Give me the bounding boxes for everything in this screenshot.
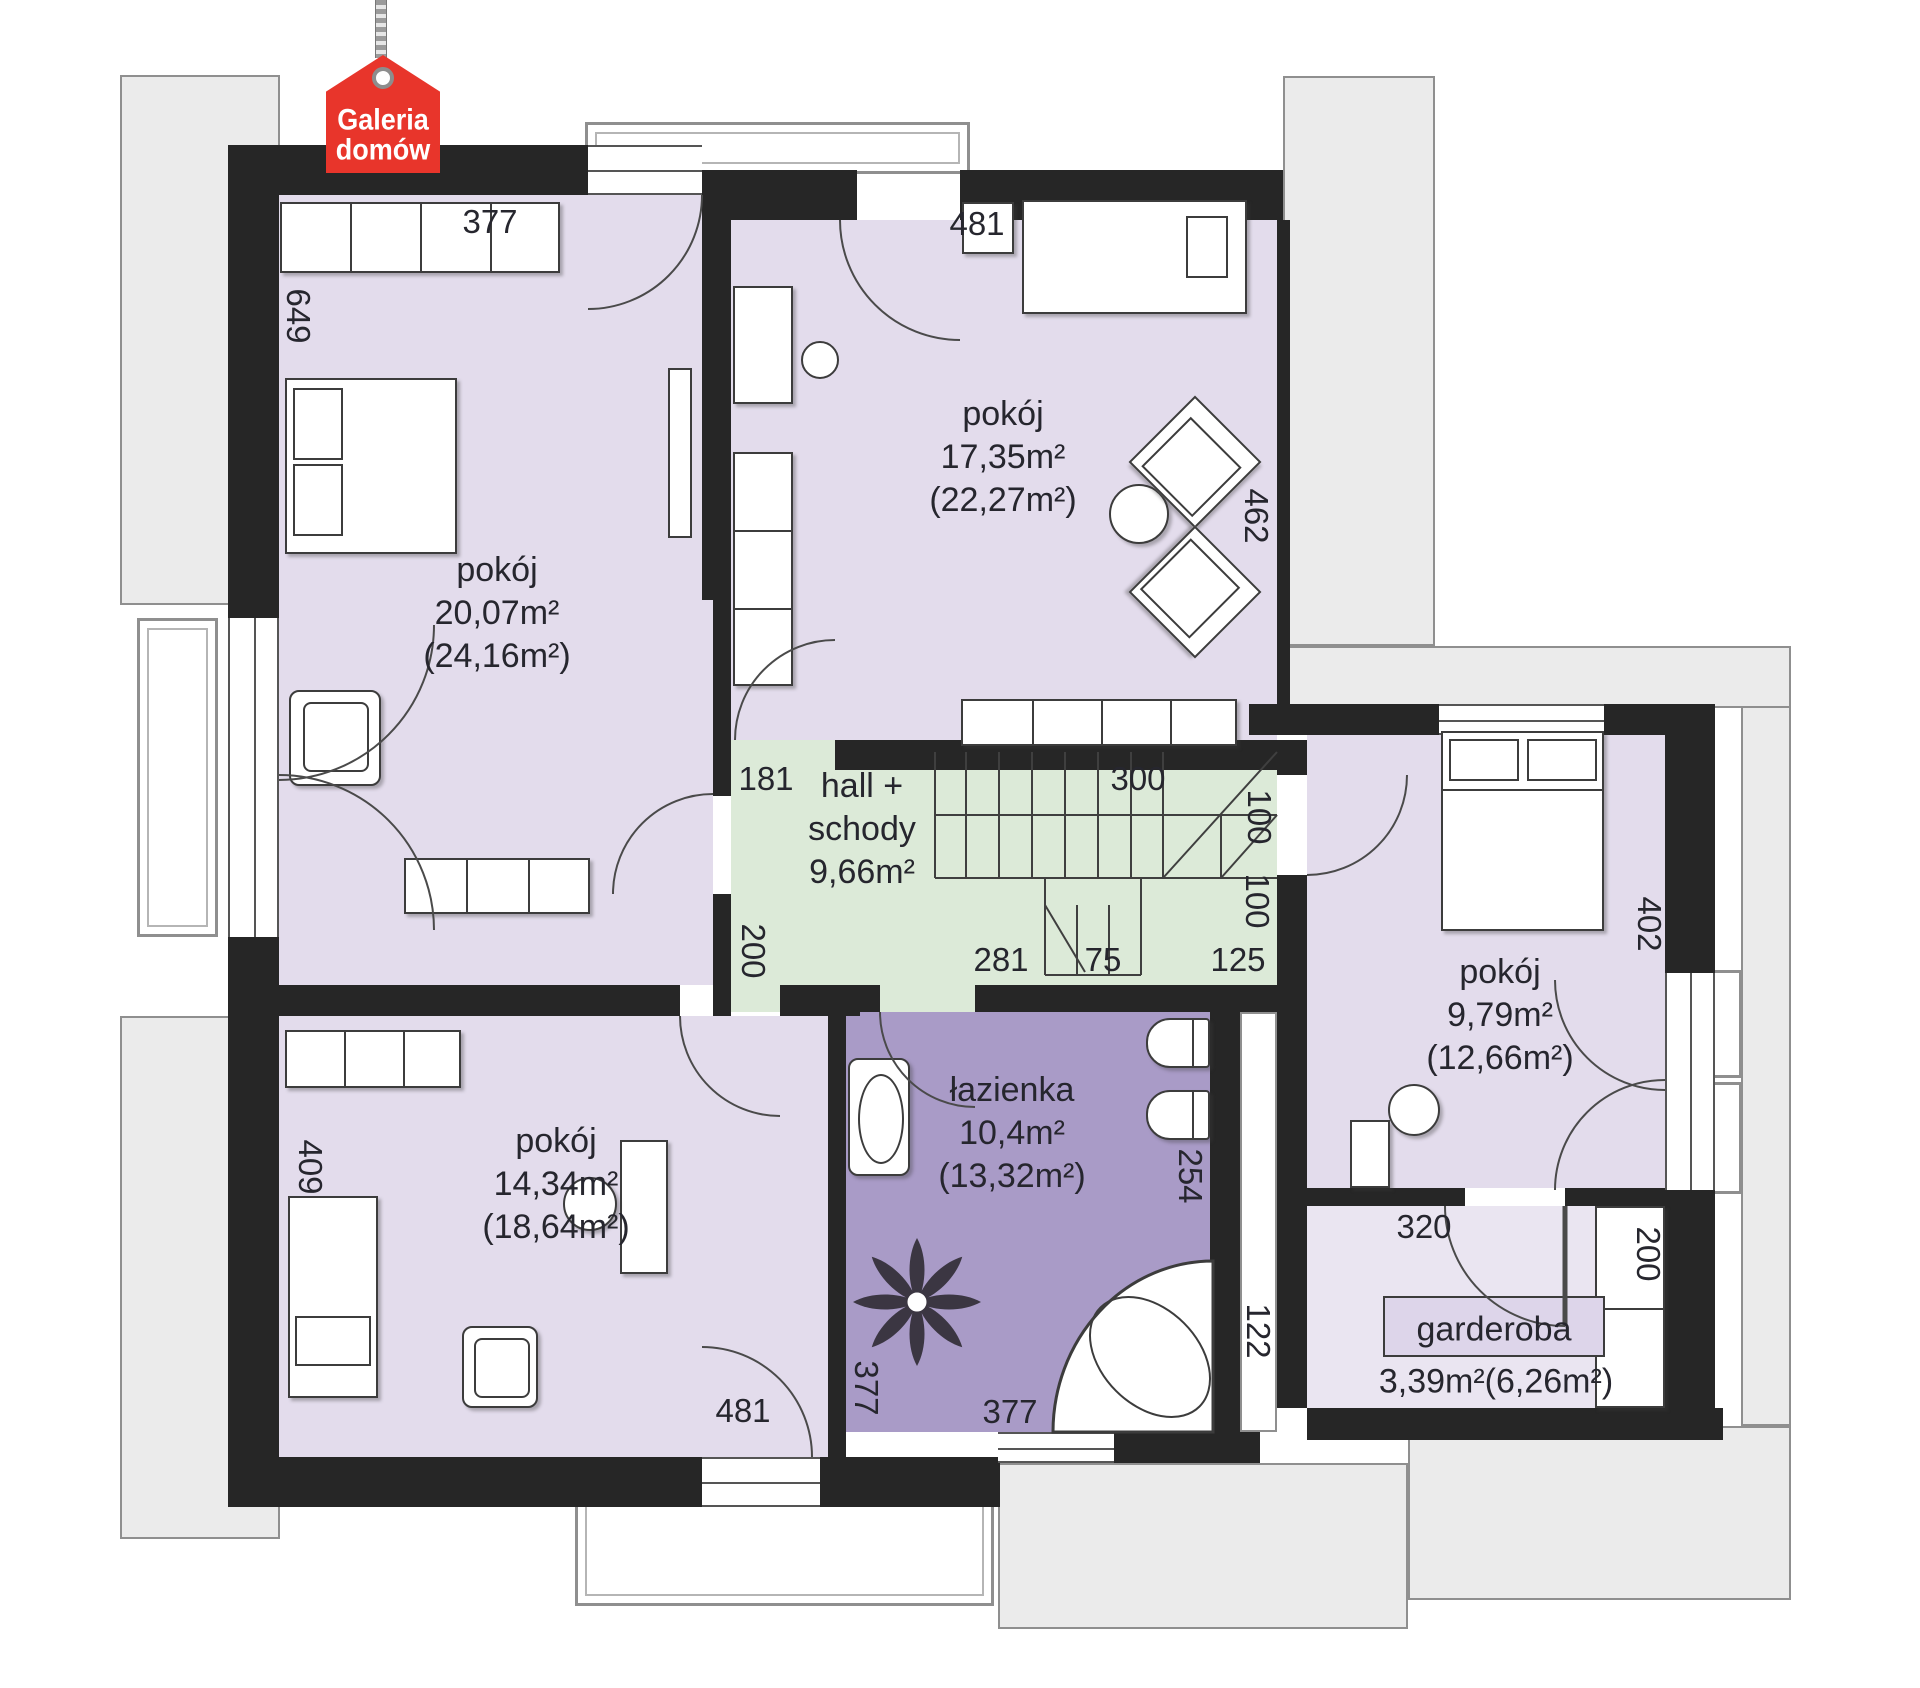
door-arcs [279, 195, 1665, 1457]
dim-649-left: 649 [279, 288, 317, 343]
room-name: hall + [808, 765, 916, 808]
label-room-top-left: pokój 20,07m² (24,16m²) [423, 549, 570, 678]
label-garderoba-area: 3,39m²(6,26m²) [1379, 1363, 1613, 1402]
label-bathroom: łazienka 10,4m² (13,32m²) [938, 1069, 1085, 1198]
room-name: pokój [482, 1120, 629, 1163]
dim-481-bottom: 481 [715, 1392, 770, 1430]
dim-300-stairs: 300 [1110, 760, 1165, 798]
room-area-total: (18,64m²) [482, 1206, 629, 1249]
dim-181-hall: 181 [738, 760, 793, 798]
room-area: 10,4m² [938, 1112, 1085, 1155]
floor-plan: pokój 20,07m² (24,16m²) pokój 17,35m² (2… [0, 0, 1920, 1688]
dim-377-bath-left: 377 [847, 1360, 885, 1415]
logo-line-2: domów [336, 134, 431, 166]
dim-122-bath: 122 [1239, 1303, 1277, 1358]
room-area-total: (12,66m²) [1426, 1037, 1573, 1080]
dim-100-stairs-a: 100 [1240, 789, 1278, 844]
dim-481-top: 481 [949, 205, 1004, 243]
chain-icon [375, 0, 387, 58]
dim-200-hall: 200 [734, 923, 772, 978]
dim-100-stairs-b: 100 [1238, 873, 1276, 928]
logo-line-1: Galeria [337, 104, 429, 136]
room-name: pokój [1426, 951, 1573, 994]
dim-462-right: 462 [1237, 488, 1275, 543]
room-area-total: (24,16m²) [423, 635, 570, 678]
dim-377-top: 377 [462, 203, 517, 241]
room-area-total: (13,32m²) [938, 1155, 1085, 1198]
bathtub [1053, 1261, 1233, 1440]
room-area: 9,66m² [808, 851, 916, 894]
dim-402-right: 402 [1630, 896, 1668, 951]
room-area: 17,35m² [929, 436, 1076, 479]
dim-254-bath: 254 [1171, 1148, 1209, 1203]
room-area: 20,07m² [423, 592, 570, 635]
label-garderoba-name: garderoba [1416, 1311, 1571, 1350]
room-name: łazienka [938, 1069, 1085, 1112]
dim-320-garderoba: 320 [1396, 1208, 1451, 1246]
label-room-right: pokój 9,79m² (12,66m²) [1426, 951, 1573, 1080]
dim-409-left: 409 [291, 1139, 329, 1194]
dim-281-hall: 281 [973, 941, 1028, 979]
dim-125-hall: 125 [1210, 941, 1265, 979]
label-hall: hall + schody 9,66m² [808, 765, 916, 894]
room-name: pokój [929, 393, 1076, 436]
room-area-total: (22,27m²) [929, 479, 1076, 522]
dim-75-stairs: 75 [1085, 941, 1122, 979]
room-area: 14,34m² [482, 1163, 629, 1206]
plan-linework [0, 0, 1920, 1688]
label-room-bottom-left: pokój 14,34m² (18,64m²) [482, 1120, 629, 1249]
label-room-top-middle: pokój 17,35m² (22,27m²) [929, 393, 1076, 522]
room-area: 9,79m² [1426, 994, 1573, 1037]
room-name: pokój [423, 549, 570, 592]
dim-377-bath-bottom: 377 [982, 1393, 1037, 1431]
plant-icon [853, 1238, 981, 1366]
dim-200-garderoba: 200 [1629, 1226, 1667, 1281]
tag-hole-icon [372, 67, 394, 89]
room-name: schody [808, 808, 916, 851]
